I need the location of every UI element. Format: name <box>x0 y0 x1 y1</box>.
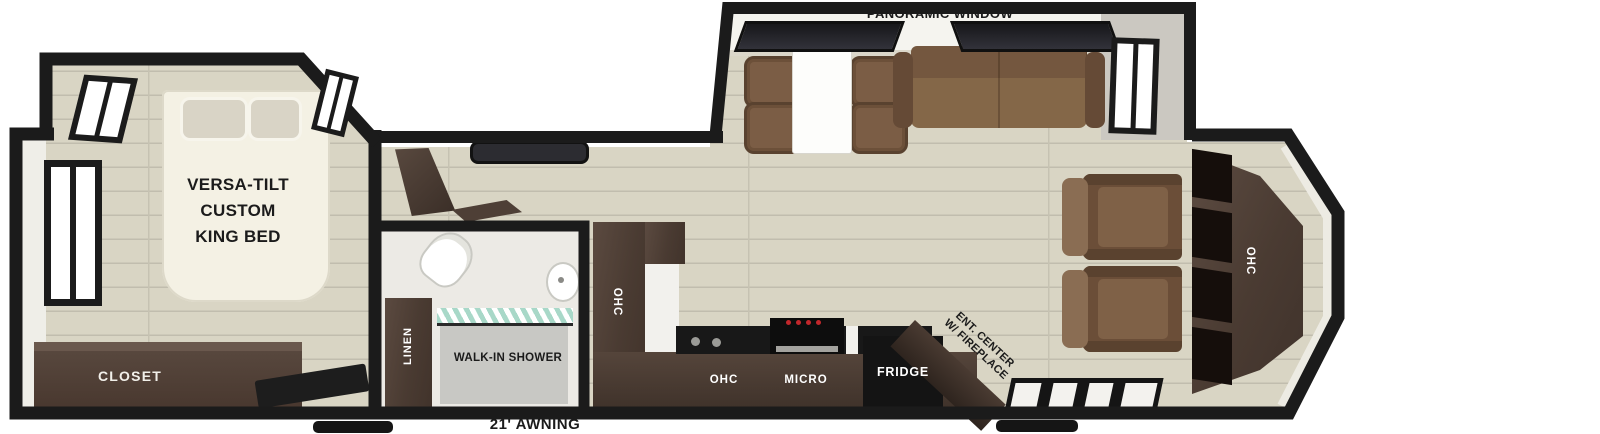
shower-glass-track <box>437 323 573 326</box>
king-bed-label: VERSA-TILT CUSTOM KING BED <box>166 172 310 250</box>
sofa-arm-left <box>893 52 913 128</box>
fridge-label: FRIDGE <box>863 365 943 379</box>
kitchen-sink-bowl <box>712 338 721 347</box>
skylight-vent <box>470 141 589 164</box>
rear-ohc-cubby-3 <box>1192 267 1232 323</box>
exterior-step-bedroom <box>313 421 393 433</box>
pillow-left <box>180 97 248 141</box>
kitchen-sink-faucet <box>691 337 700 346</box>
exterior-step-main <box>996 420 1078 432</box>
kitchen-upper-cabinet-arm <box>645 222 685 264</box>
oven-handle <box>776 346 838 352</box>
ohc-pantry-label: OHC <box>611 279 623 325</box>
walk-in-shower-label: WALK-IN SHOWER <box>438 352 578 364</box>
dinette-table <box>792 42 852 154</box>
rear-corner-window <box>1108 37 1159 135</box>
shower-glass <box>437 308 573 323</box>
closet-label: CLOSET <box>40 368 220 384</box>
ohc-rear-label: OHC <box>1244 239 1256 283</box>
pillow-right <box>248 97 302 141</box>
awning-label: 21' AWNING <box>435 416 635 433</box>
micro-label: MICRO <box>766 374 846 386</box>
panoramic-window-label: PANORAMIC WINDOW <box>840 6 1040 21</box>
recliner-2 <box>1062 266 1182 352</box>
stove-knob-2 <box>796 320 801 325</box>
bedroom-side-window <box>44 160 102 306</box>
rear-ohc-cubby-4 <box>1192 327 1232 385</box>
counter-gap <box>846 326 858 354</box>
linen-label: LINEN <box>402 312 414 380</box>
sofa <box>893 46 1105 130</box>
floorplan-canvas: PANORAMIC WINDOW VERSA-TILT CUSTOM KING … <box>0 0 1600 434</box>
rear-ohc-cubby-2 <box>1192 207 1232 263</box>
rear-ohc-cubby-1 <box>1192 149 1232 203</box>
panoramic-window-right <box>950 21 1121 52</box>
recliner-1 <box>1062 174 1182 260</box>
kitchen-counter-white <box>645 264 679 354</box>
sofa-arm-right <box>1085 52 1105 128</box>
sink-drain <box>558 277 564 283</box>
stove-knob-3 <box>806 320 811 325</box>
ohc-kitchen-label: OHC <box>694 374 754 386</box>
panoramic-window-left <box>734 21 905 52</box>
stove-knob-1 <box>786 320 791 325</box>
stove-knob-4 <box>816 320 821 325</box>
